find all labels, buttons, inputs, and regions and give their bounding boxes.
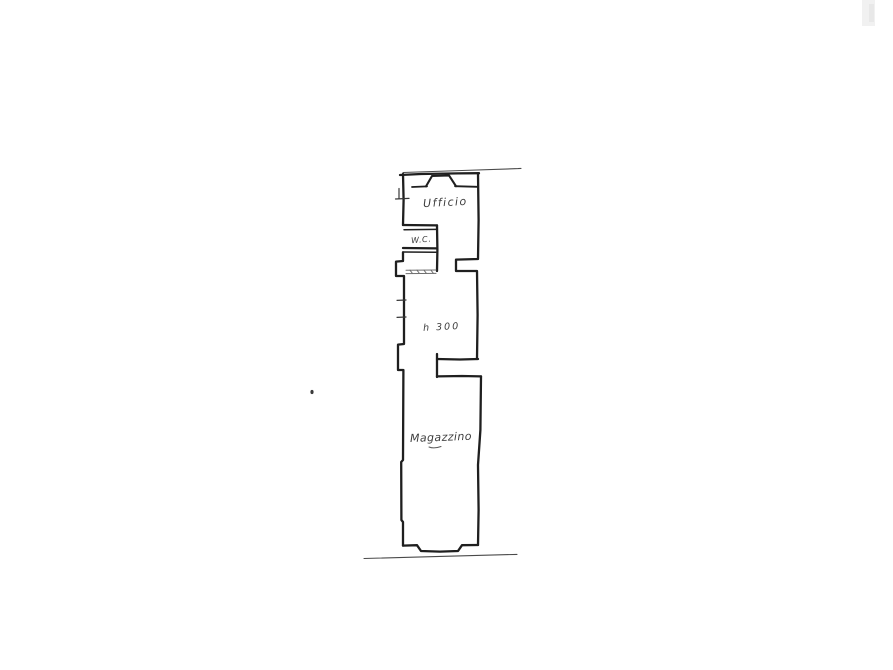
- ink-speck: [310, 390, 313, 394]
- wall-left-upper: [403, 174, 404, 225]
- boundary-lines: [364, 168, 521, 558]
- bottom-ground-line: [364, 554, 517, 558]
- floor-plan-drawing: Ufficio W.C. h 300 Magazzino: [0, 0, 893, 670]
- wall-middle-bottom: [437, 359, 478, 360]
- entrance-door-mark: [426, 175, 456, 186]
- walls: [396, 173, 481, 551]
- label-underline-squiggle: [429, 447, 441, 448]
- wall-top-inner-right: [455, 186, 477, 187]
- top-boundary-line: [403, 168, 521, 172]
- wall-left-lower: [396, 252, 404, 545]
- height-annotation: h 300: [423, 321, 461, 334]
- room-label-magazzino: Magazzino: [410, 430, 472, 445]
- scanned-page: Ufficio W.C. h 300 Magazzino: [0, 0, 893, 670]
- interior-door-hatch: [406, 270, 436, 274]
- wall-bottom: [403, 545, 478, 552]
- room-label-wc: W.C.: [411, 235, 432, 246]
- scan-smudge: [862, 0, 875, 26]
- room-label-ufficio: Ufficio: [423, 195, 468, 210]
- wall-top-inner-left: [412, 186, 427, 187]
- tick-upper-horizontal: [396, 198, 410, 199]
- wall-right-lower: [478, 376, 481, 545]
